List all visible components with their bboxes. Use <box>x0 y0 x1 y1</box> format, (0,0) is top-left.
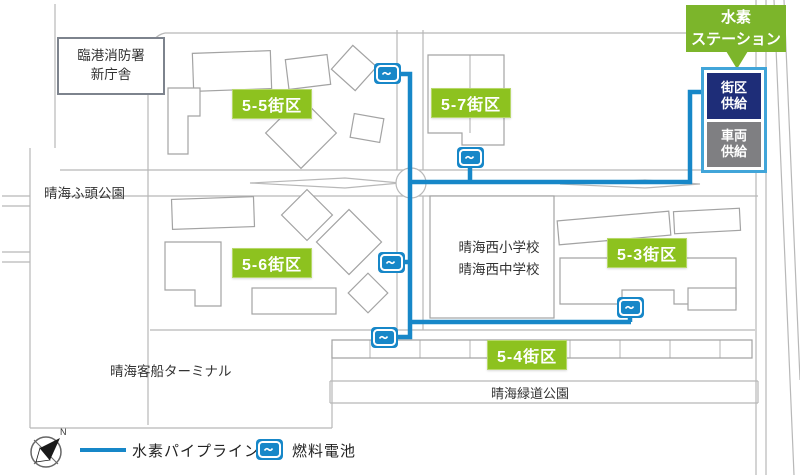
hydrogen-station-box: 街区 供給 車両 供給 <box>701 67 767 173</box>
fire-station-label: 臨港消防署 新庁舎 <box>57 37 165 95</box>
fuel-cell-legend-label: 燃料電池 <box>292 440 356 461</box>
green-road-park-label: 晴海緑道公園 <box>491 385 569 404</box>
junior-high-school-label: 晴海西中学校 <box>443 260 555 280</box>
block-tag-5-4: 5-4街区 <box>487 340 567 370</box>
pipeline-legend-swatch <box>80 448 126 452</box>
block-tag-5-6: 5-6街区 <box>232 248 312 278</box>
compass-icon: N <box>24 426 74 474</box>
pipeline-legend-label: 水素パイプライン <box>132 440 260 461</box>
fuel-cell-legend-icon <box>256 439 283 460</box>
fuel-cell-icon-5-4 <box>371 327 398 348</box>
callout-line1: 水素 <box>686 7 786 29</box>
pier-park-label: 晴海ふ頭公園 <box>44 184 125 204</box>
hydrogen-station-callout: 水素 ステーション <box>686 5 786 52</box>
block-tag-5-5: 5-5街区 <box>232 89 312 119</box>
elementary-school-label: 晴海西小学校 <box>443 238 555 258</box>
vehicle-supply-label: 車両 供給 <box>707 122 761 168</box>
fuel-cell-icon-5-3 <box>617 297 644 318</box>
callout-line2: ステーション <box>686 29 786 51</box>
block-tag-5-3: 5-3街区 <box>607 238 687 268</box>
site-map: 臨港消防署 新庁舎 晴海ふ頭公園 晴海西小学校 晴海西中学校 晴海客船ターミナル… <box>0 0 800 475</box>
fuel-cell-icon-5-7 <box>457 147 484 168</box>
block-tag-5-7: 5-7街区 <box>431 88 511 118</box>
fuel-cell-icon-5-5 <box>374 63 401 84</box>
cruise-terminal-label: 晴海客船ターミナル <box>110 362 232 382</box>
block-supply-label: 街区 供給 <box>707 73 761 119</box>
fuel-cell-icon-5-6 <box>378 252 405 273</box>
compass-north-letter: N <box>60 427 67 437</box>
